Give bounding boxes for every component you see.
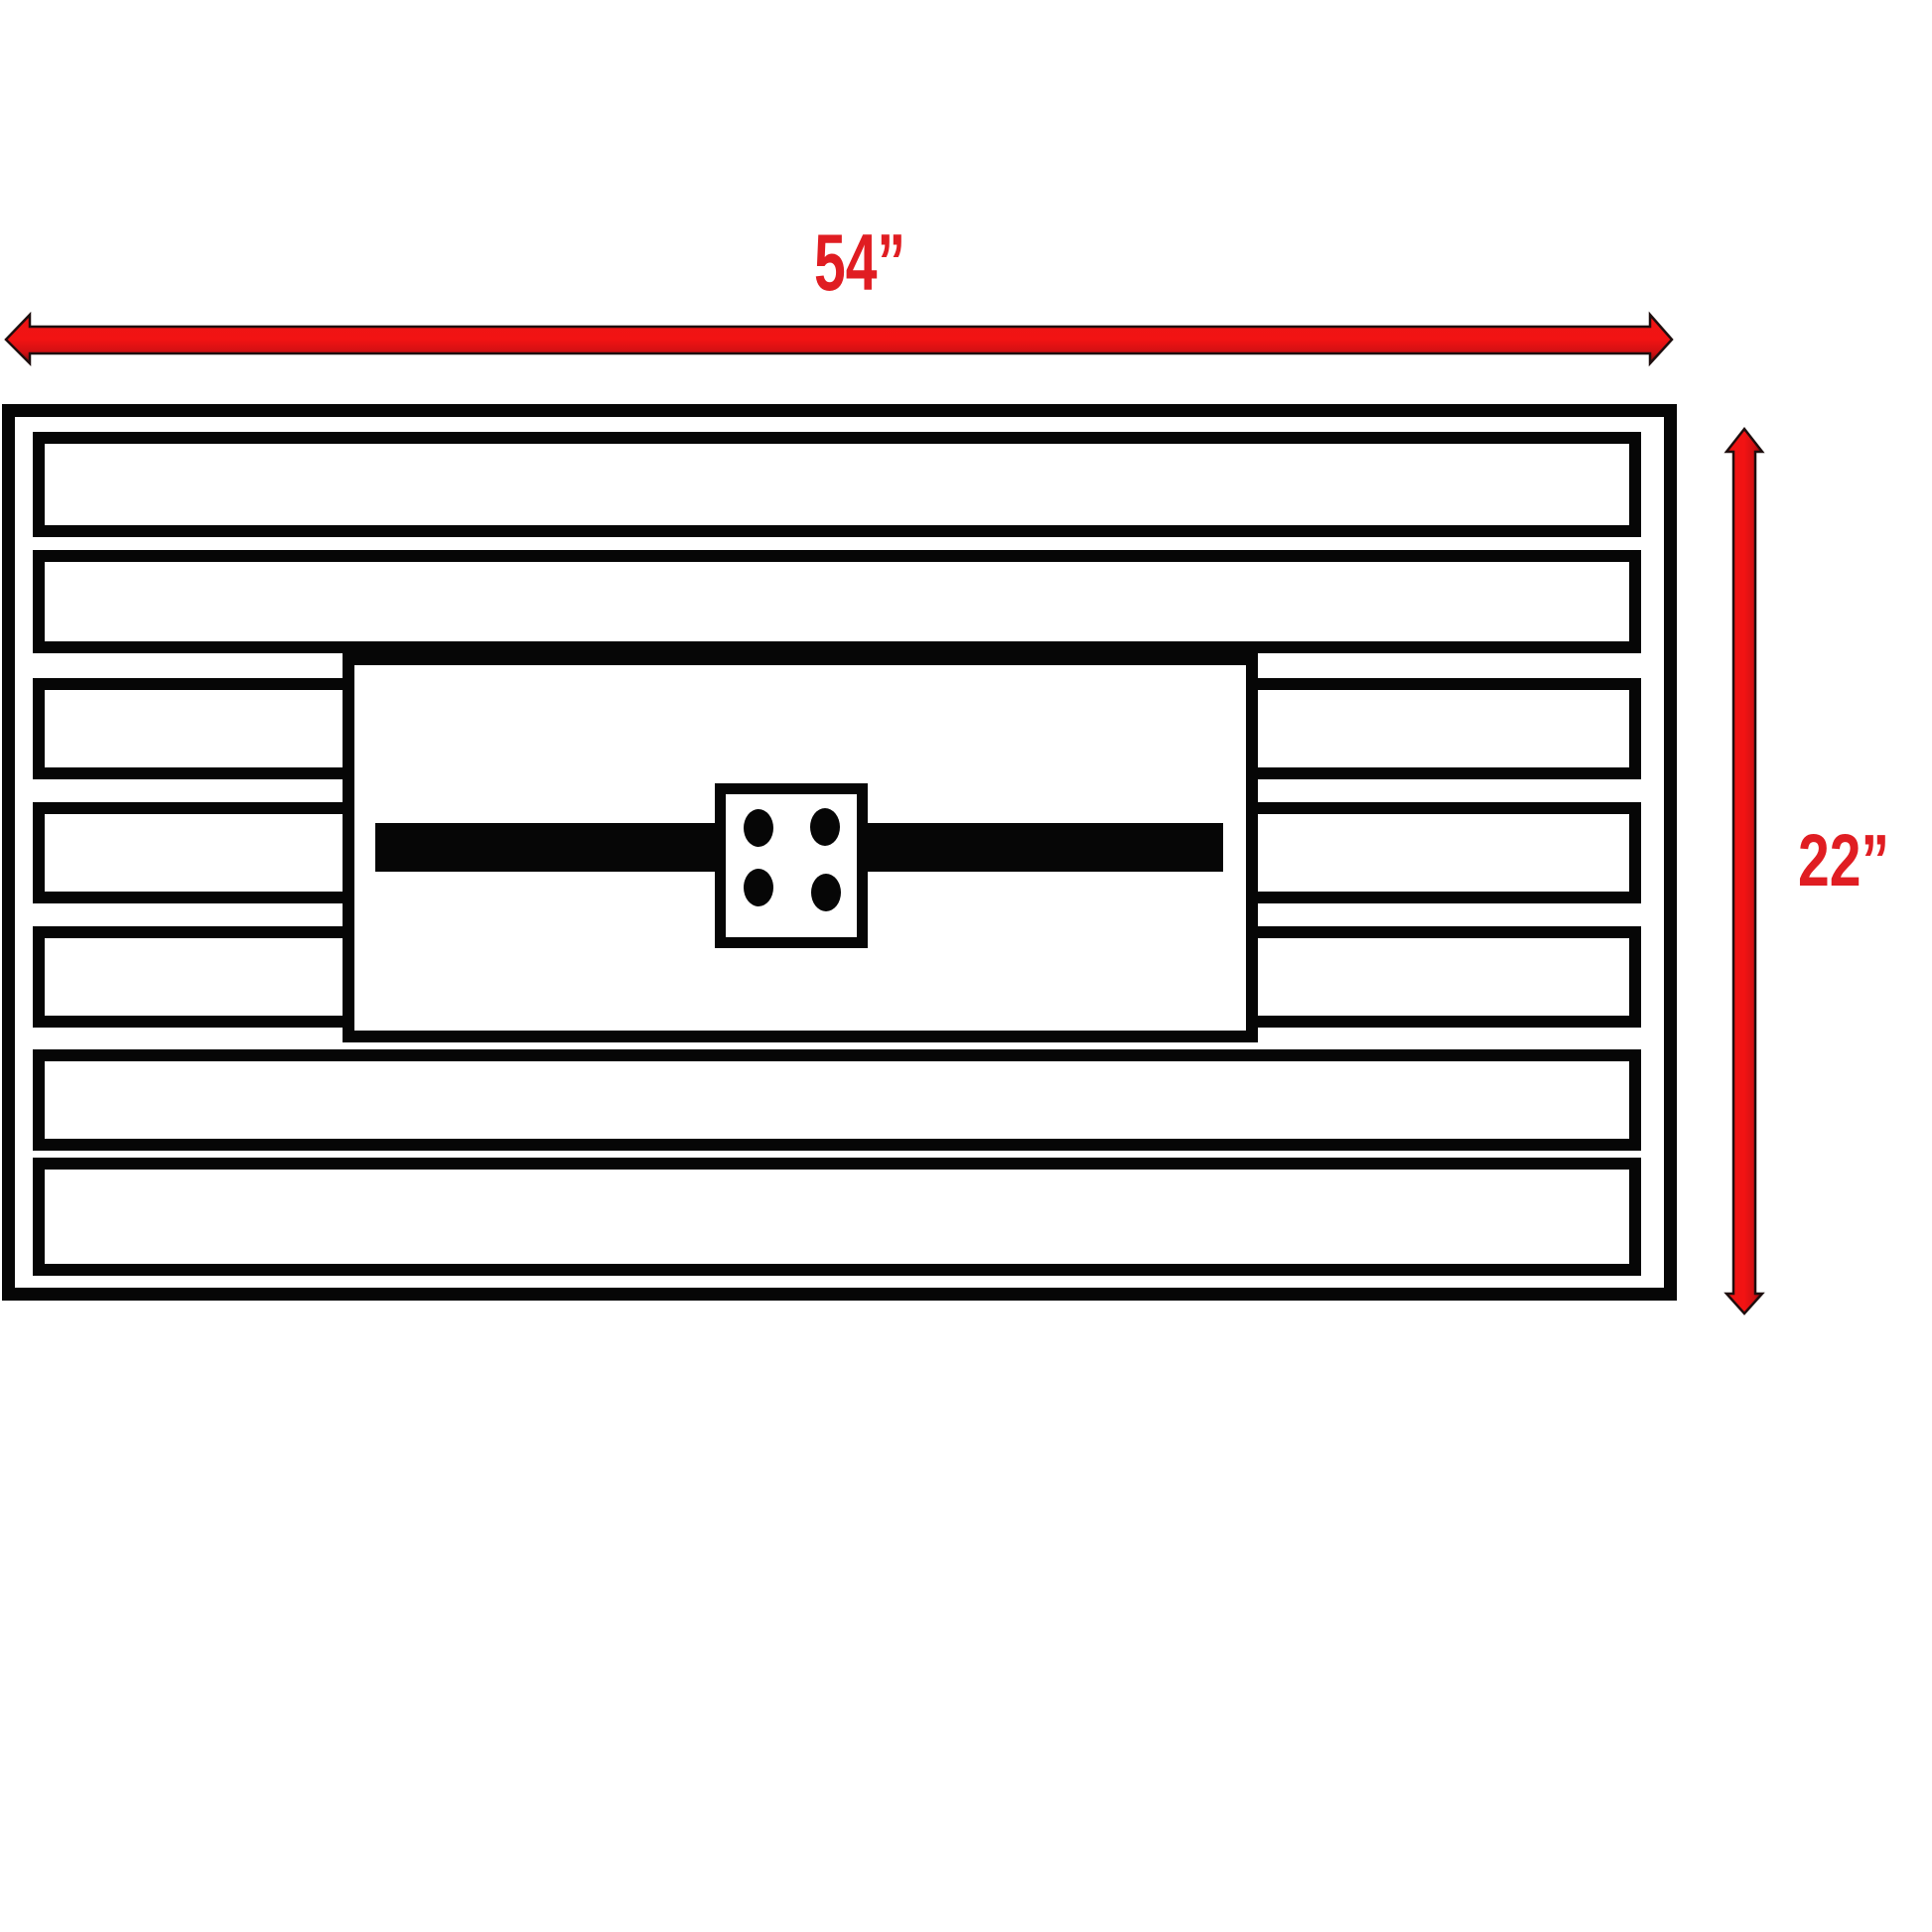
svg-text:22”: 22” xyxy=(1798,819,1889,901)
svg-text:54”: 54” xyxy=(814,218,905,308)
